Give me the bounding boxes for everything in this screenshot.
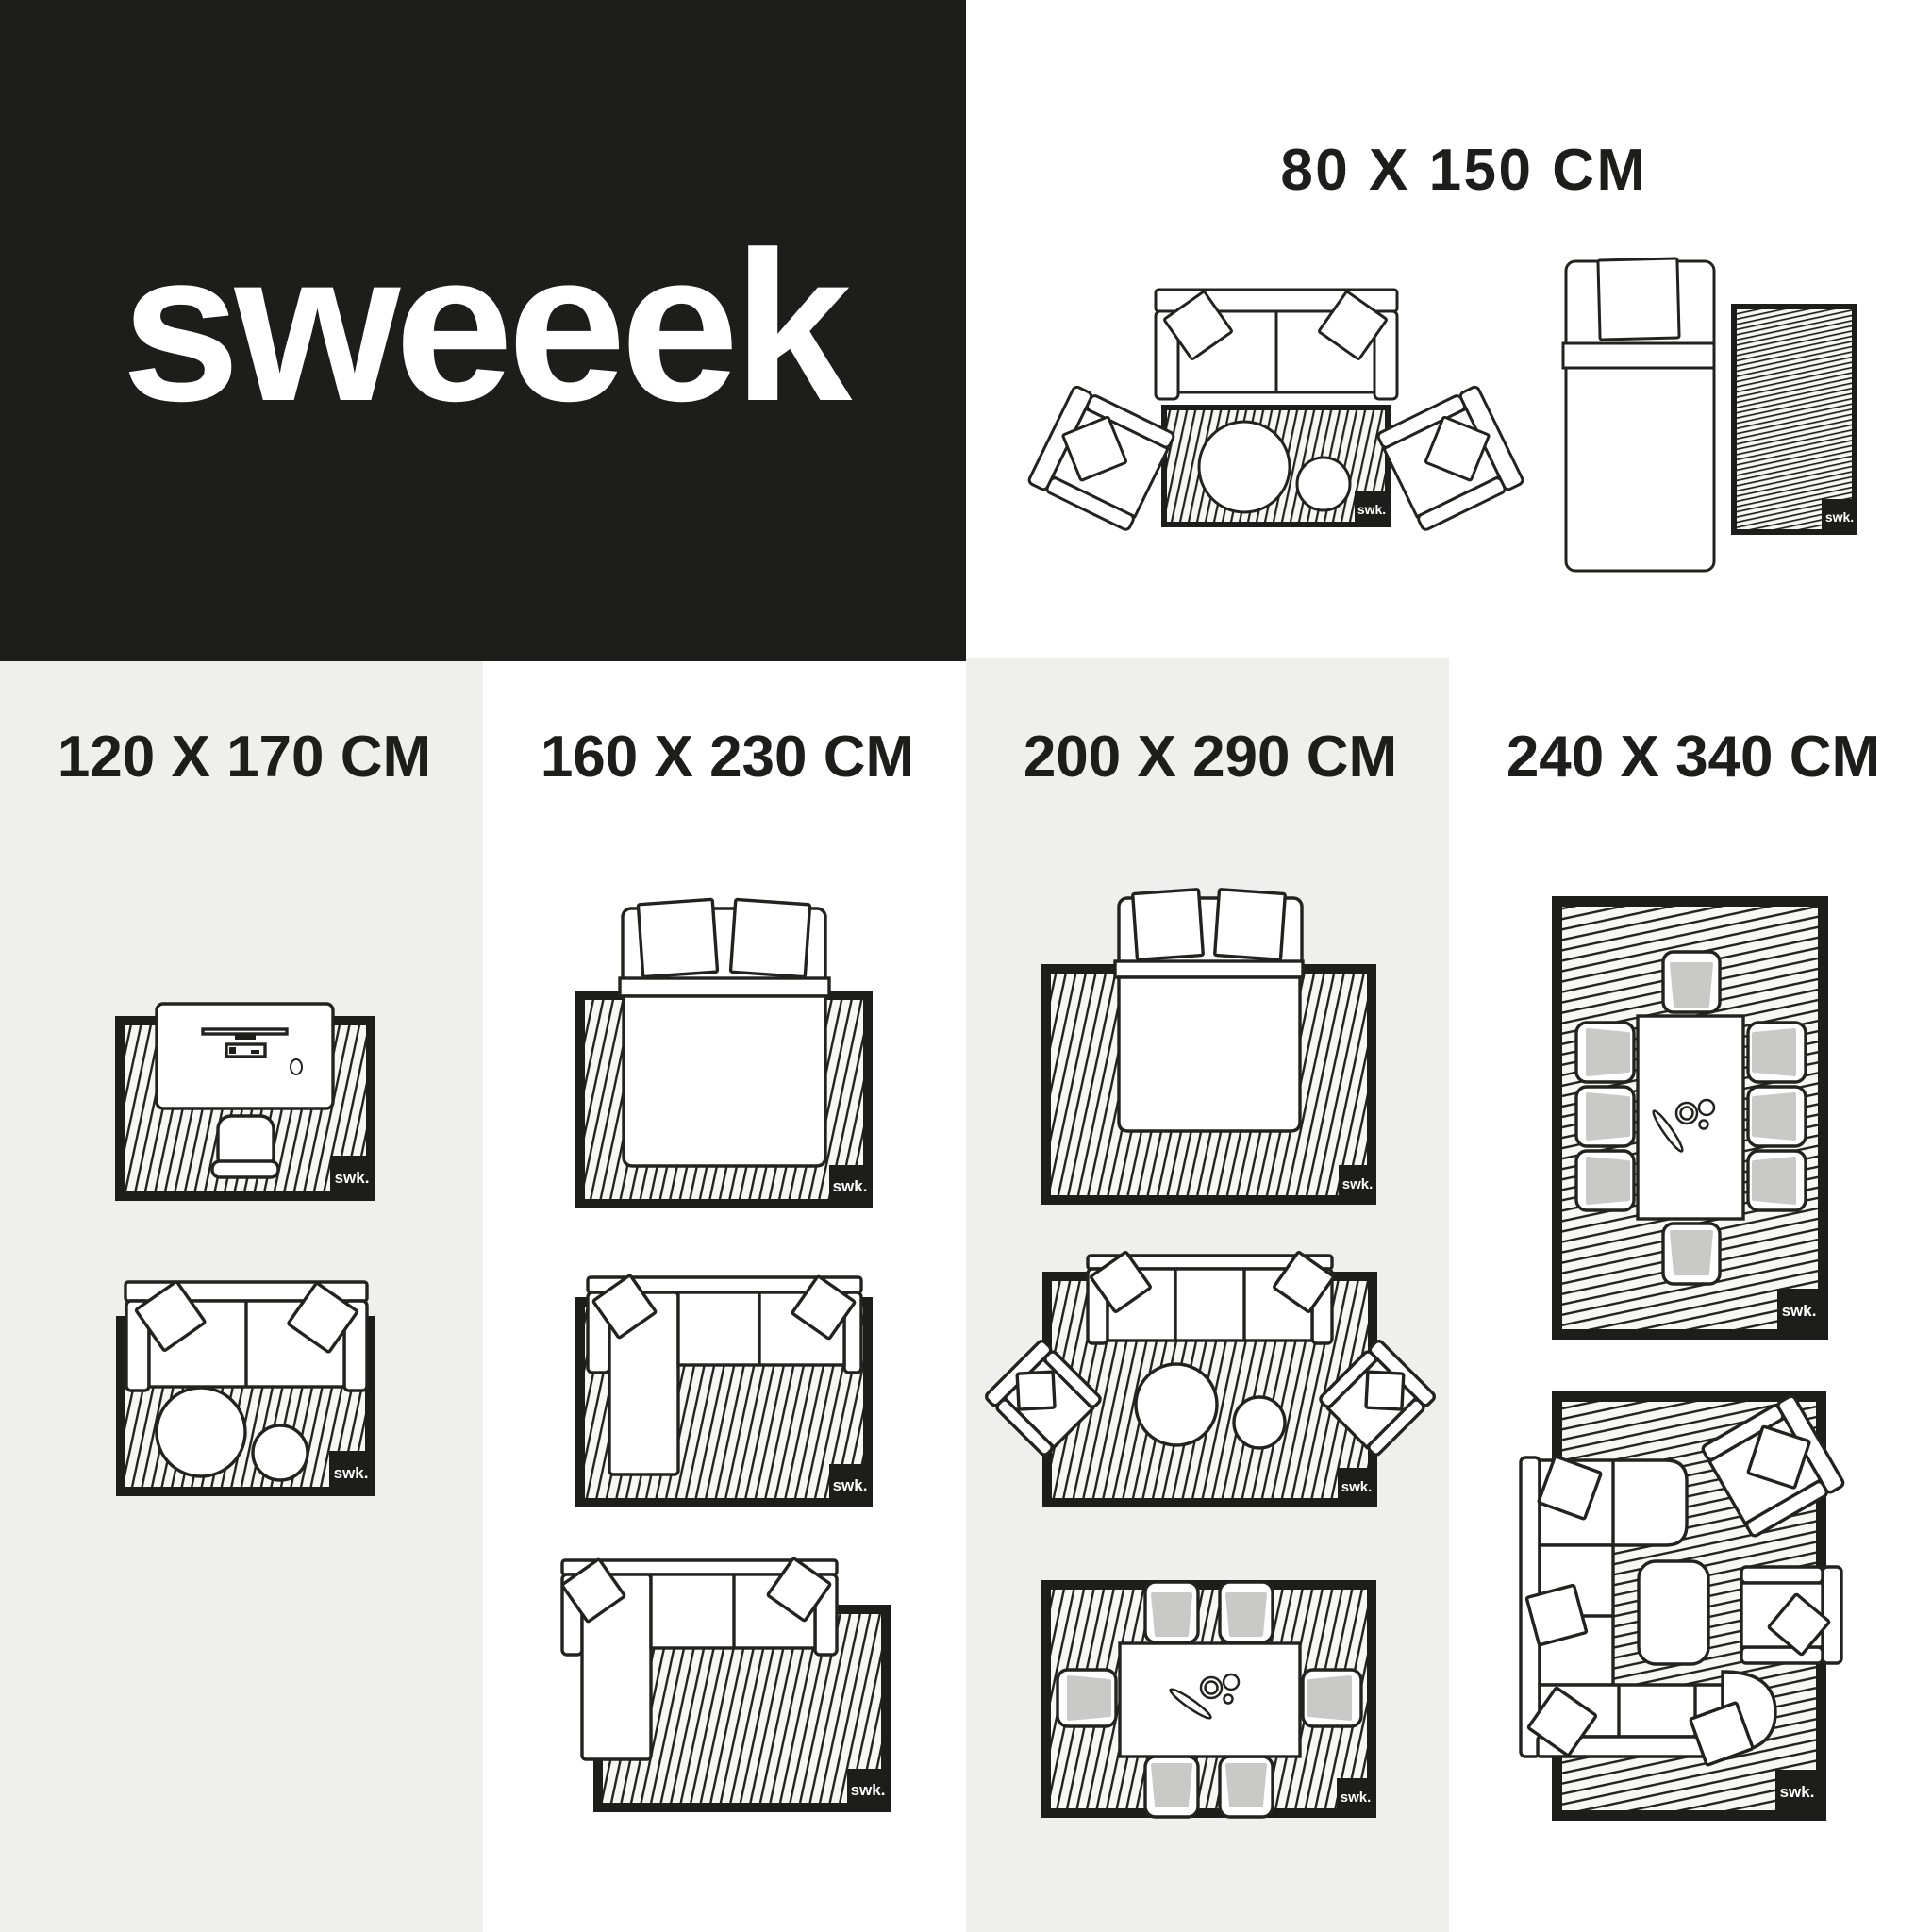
svg-text:swk.: swk.: [1342, 1176, 1374, 1192]
svg-text:swk.: swk.: [851, 1781, 886, 1799]
svg-text:80 X 150 CM: 80 X 150 CM: [1280, 138, 1647, 203]
svg-text:200 X 290 CM: 200 X 290 CM: [1024, 724, 1397, 790]
svg-text:swk.: swk.: [1780, 1783, 1815, 1801]
svg-text:swk.: swk.: [1825, 509, 1854, 525]
svg-text:160 X 230 CM: 160 X 230 CM: [541, 724, 914, 790]
svg-text:swk.: swk.: [833, 1476, 868, 1494]
svg-text:swk.: swk.: [335, 1169, 370, 1187]
svg-text:swk.: swk.: [1782, 1302, 1817, 1320]
svg-text:120 X 170 CM: 120 X 170 CM: [58, 724, 431, 790]
svg-text:sweeek: sweeek: [122, 207, 853, 445]
svg-text:swk.: swk.: [1357, 502, 1386, 517]
svg-text:swk.: swk.: [1341, 1479, 1373, 1495]
svg-text:swk.: swk.: [833, 1177, 868, 1195]
svg-text:swk.: swk.: [1341, 1790, 1372, 1806]
svg-text:240 X 340 CM: 240 X 340 CM: [1507, 724, 1880, 790]
svg-text:swk.: swk.: [334, 1464, 369, 1482]
